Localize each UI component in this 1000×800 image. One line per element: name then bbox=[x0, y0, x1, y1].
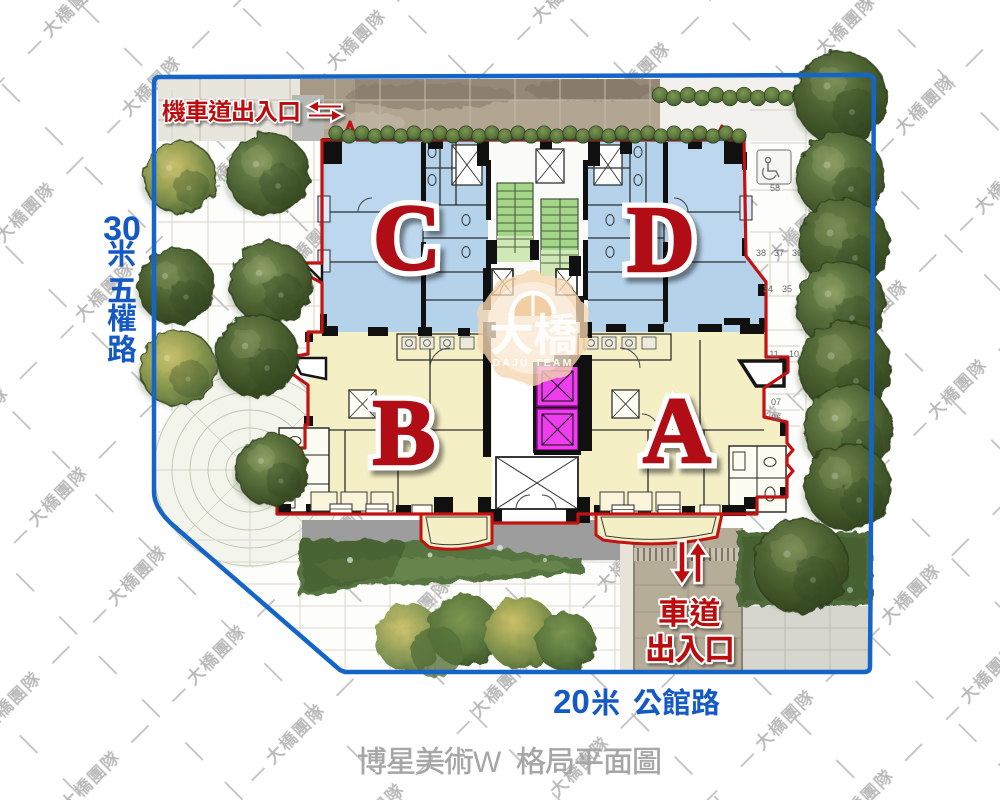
svg-text:07: 07 bbox=[771, 397, 781, 407]
svg-text:58: 58 bbox=[770, 183, 780, 193]
svg-text:B: B bbox=[373, 381, 436, 485]
svg-text:36: 36 bbox=[792, 248, 802, 258]
svg-text:D: D bbox=[627, 188, 695, 292]
svg-text:35: 35 bbox=[782, 284, 792, 294]
svg-text:11: 11 bbox=[769, 349, 778, 359]
svg-text:DAJU TEAM: DAJU TEAM bbox=[492, 357, 573, 369]
svg-text:10: 10 bbox=[789, 349, 799, 359]
svg-text:C: C bbox=[373, 186, 441, 290]
svg-text:A: A bbox=[643, 379, 711, 483]
svg-text:38: 38 bbox=[756, 248, 766, 258]
svg-text:37: 37 bbox=[774, 248, 784, 258]
svg-text:20: 20 bbox=[553, 683, 590, 720]
svg-text:06: 06 bbox=[771, 413, 781, 423]
svg-text:34: 34 bbox=[763, 284, 773, 294]
svg-text:W: W bbox=[473, 746, 502, 779]
